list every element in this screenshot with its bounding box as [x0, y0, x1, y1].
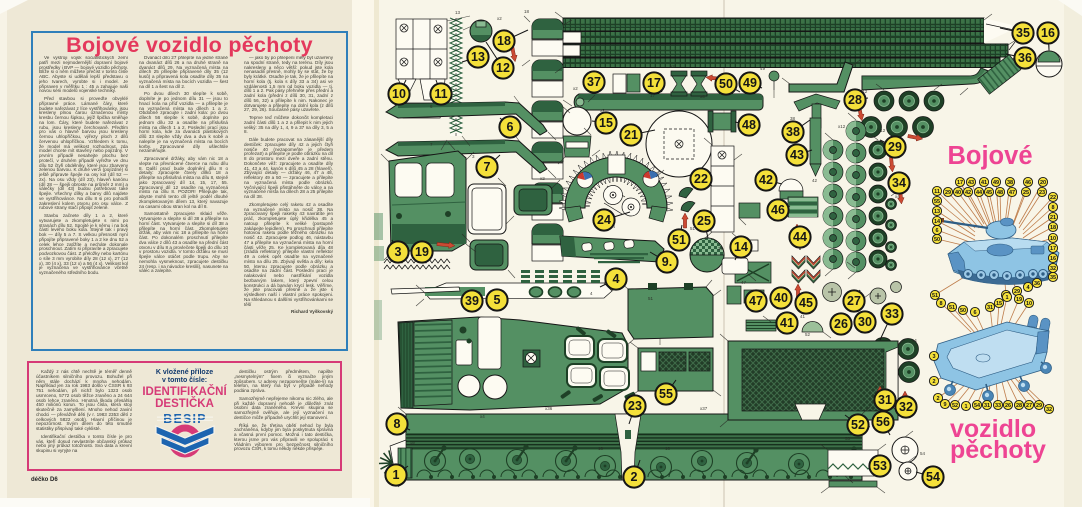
svg-text:28: 28	[848, 93, 862, 107]
svg-text:31: 31	[878, 393, 892, 407]
svg-text:40: 40	[955, 190, 961, 196]
svg-text:41: 41	[981, 180, 987, 186]
svg-text:14: 14	[934, 219, 941, 225]
svg-text:18: 18	[524, 9, 530, 14]
svg-text:32: 32	[1050, 266, 1056, 272]
svg-text:46: 46	[771, 203, 785, 217]
svg-text:54: 54	[926, 470, 940, 484]
svg-text:5: 5	[494, 293, 501, 307]
svg-text:10: 10	[1026, 301, 1032, 307]
svg-text:2: 2	[631, 470, 638, 484]
svg-text:10: 10	[665, 446, 671, 451]
svg-text:35: 35	[1016, 26, 1030, 40]
svg-text:27: 27	[847, 294, 861, 308]
svg-text:27: 27	[1026, 403, 1032, 409]
svg-text:10: 10	[598, 446, 604, 451]
svg-text:52: 52	[952, 403, 958, 409]
svg-text:31: 31	[987, 305, 993, 311]
svg-text:24: 24	[597, 213, 611, 227]
svg-text:28: 28	[1016, 403, 1022, 409]
svg-text:20: 20	[1040, 180, 1046, 186]
svg-text:51: 51	[949, 305, 955, 311]
svg-text:16: 16	[1050, 256, 1056, 262]
svg-text:55: 55	[659, 387, 673, 401]
svg-text:32: 32	[899, 400, 913, 414]
svg-text:26: 26	[834, 317, 848, 331]
svg-text:54: 54	[920, 451, 926, 456]
svg-text:14: 14	[734, 240, 748, 254]
svg-text:56: 56	[876, 415, 890, 429]
svg-text:44: 44	[976, 190, 983, 196]
svg-text:55: 55	[680, 356, 686, 361]
svg-text:26: 26	[1005, 403, 1011, 409]
svg-text:19: 19	[415, 245, 429, 259]
svg-text:55: 55	[934, 199, 940, 205]
svg-text:36: 36	[1034, 281, 1040, 287]
svg-text:43: 43	[790, 148, 804, 162]
svg-text:x2: x2	[497, 16, 502, 21]
svg-text:42: 42	[812, 178, 818, 183]
svg-text:40: 40	[774, 291, 788, 305]
svg-text:33: 33	[885, 307, 899, 321]
svg-text:38: 38	[786, 125, 800, 139]
svg-text:25: 25	[718, 246, 724, 251]
svg-text:50: 50	[960, 308, 966, 314]
svg-text:x4: x4	[912, 338, 917, 343]
svg-text:11: 11	[434, 87, 447, 101]
svg-text:30: 30	[858, 315, 872, 329]
svg-text:39: 39	[465, 294, 479, 308]
svg-text:21: 21	[1050, 215, 1056, 221]
svg-text:29: 29	[888, 140, 902, 154]
svg-text:pěchoty: pěchoty	[950, 436, 1046, 464]
svg-text:16: 16	[1041, 26, 1055, 40]
svg-text:9.: 9.	[662, 255, 672, 269]
svg-text:51: 51	[648, 296, 654, 301]
svg-text:23: 23	[628, 399, 642, 413]
svg-text:11: 11	[934, 189, 940, 195]
svg-text:3: 3	[932, 354, 935, 360]
svg-text:47: 47	[1009, 190, 1015, 196]
svg-text:12: 12	[496, 61, 510, 75]
svg-text:33: 33	[995, 403, 1001, 409]
svg-text:47: 47	[741, 280, 747, 285]
svg-text:45: 45	[799, 296, 813, 310]
svg-text:6: 6	[507, 120, 514, 134]
svg-text:x4: x4	[480, 414, 485, 419]
svg-text:31: 31	[984, 403, 990, 409]
svg-text:32: 32	[1046, 407, 1052, 413]
svg-text:13: 13	[455, 10, 461, 15]
svg-text:x12: x12	[878, 128, 886, 133]
svg-text:6: 6	[935, 228, 938, 234]
svg-text:23: 23	[1039, 190, 1045, 196]
svg-text:8: 8	[394, 417, 401, 431]
svg-text:52: 52	[805, 332, 811, 337]
svg-text:54: 54	[974, 403, 981, 409]
svg-text:15: 15	[599, 116, 613, 130]
svg-text:29: 29	[945, 190, 951, 196]
svg-text:43: 43	[968, 180, 974, 186]
svg-text:7: 7	[484, 160, 491, 174]
svg-text:38: 38	[1007, 180, 1013, 186]
svg-text:4: 4	[613, 272, 620, 286]
svg-text:10: 10	[392, 87, 406, 101]
svg-text:29: 29	[1036, 403, 1042, 409]
svg-text:53: 53	[873, 459, 887, 473]
svg-text:46: 46	[1025, 180, 1031, 186]
svg-text:25: 25	[697, 214, 711, 228]
svg-text:34: 34	[892, 176, 906, 190]
svg-text:37: 37	[587, 75, 601, 89]
svg-text:3: 3	[395, 245, 402, 259]
svg-text:25: 25	[1023, 190, 1029, 196]
svg-text:Bojové: Bojové	[947, 142, 1032, 170]
svg-text:15: 15	[996, 301, 1002, 307]
svg-text:10: 10	[1050, 236, 1056, 242]
svg-text:49: 49	[993, 180, 999, 186]
svg-text:41: 41	[780, 316, 794, 330]
svg-text:x2: x2	[670, 64, 675, 69]
svg-text:41: 41	[800, 314, 806, 319]
svg-text:50: 50	[719, 77, 733, 91]
svg-text:35: 35	[1050, 275, 1056, 281]
svg-text:17: 17	[957, 180, 963, 186]
svg-text:1: 1	[1005, 295, 1008, 301]
svg-text:x4: x4	[700, 94, 705, 99]
svg-text:38: 38	[790, 116, 796, 121]
svg-text:44: 44	[793, 230, 807, 244]
svg-text:22: 22	[694, 172, 708, 186]
svg-text:52: 52	[851, 418, 865, 432]
svg-text:21: 21	[624, 128, 638, 142]
svg-text:13: 13	[471, 50, 485, 64]
svg-text:8: 8	[1051, 205, 1054, 211]
svg-text:13: 13	[934, 209, 940, 215]
svg-text:51: 51	[932, 293, 938, 299]
svg-text:x12: x12	[838, 124, 846, 129]
svg-text:45: 45	[986, 190, 992, 196]
svg-text:x36: x36	[545, 406, 553, 411]
svg-text:19: 19	[1016, 297, 1022, 303]
svg-text:x37: x37	[700, 406, 708, 411]
svg-text:1: 1	[393, 468, 400, 482]
svg-text:42: 42	[759, 173, 773, 187]
svg-text:42: 42	[965, 190, 971, 196]
svg-text:48: 48	[742, 118, 756, 132]
svg-text:2: 2	[936, 396, 939, 402]
svg-text:51: 51	[672, 233, 686, 247]
svg-text:36: 36	[1018, 51, 1032, 65]
svg-text:22: 22	[1050, 195, 1056, 201]
svg-text:50: 50	[934, 237, 940, 243]
svg-text:6: 6	[973, 310, 976, 316]
svg-text:48: 48	[997, 190, 1003, 196]
svg-text:1: 1	[964, 404, 967, 410]
svg-text:9: 9	[943, 402, 946, 408]
svg-text:x2: x2	[573, 86, 578, 91]
svg-text:53: 53	[845, 436, 851, 441]
svg-text:18: 18	[1050, 225, 1056, 231]
svg-text:18: 18	[497, 34, 511, 48]
svg-text:17: 17	[647, 76, 661, 90]
svg-text:47: 47	[749, 294, 763, 308]
svg-text:x8: x8	[410, 441, 415, 446]
svg-text:BESIP: BESIP	[163, 412, 207, 426]
svg-text:x2: x2	[540, 176, 545, 181]
svg-text:8: 8	[939, 301, 942, 307]
svg-text:2: 2	[932, 379, 935, 385]
svg-text:17: 17	[1050, 246, 1056, 252]
svg-text:49: 49	[760, 66, 766, 71]
svg-text:49: 49	[743, 76, 757, 90]
